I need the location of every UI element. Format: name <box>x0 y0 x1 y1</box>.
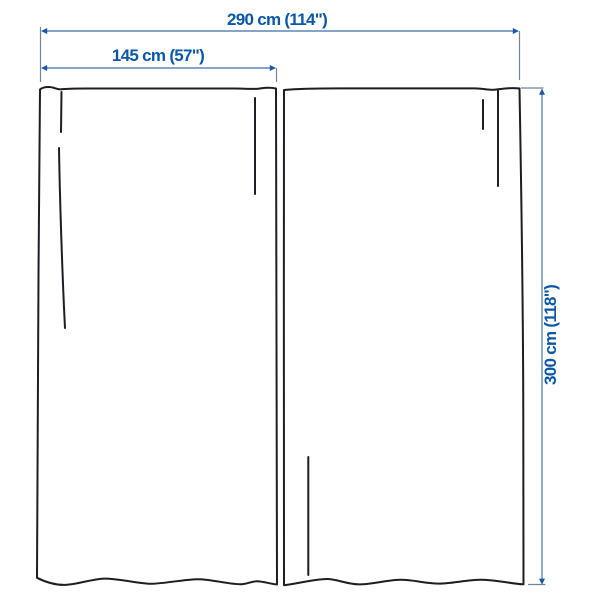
svg-text:290 cm (114"): 290 cm (114") <box>227 10 327 29</box>
svg-text:300 cm (118"): 300 cm (118") <box>541 285 560 385</box>
svg-text:145 cm (57"): 145 cm (57") <box>112 46 204 65</box>
